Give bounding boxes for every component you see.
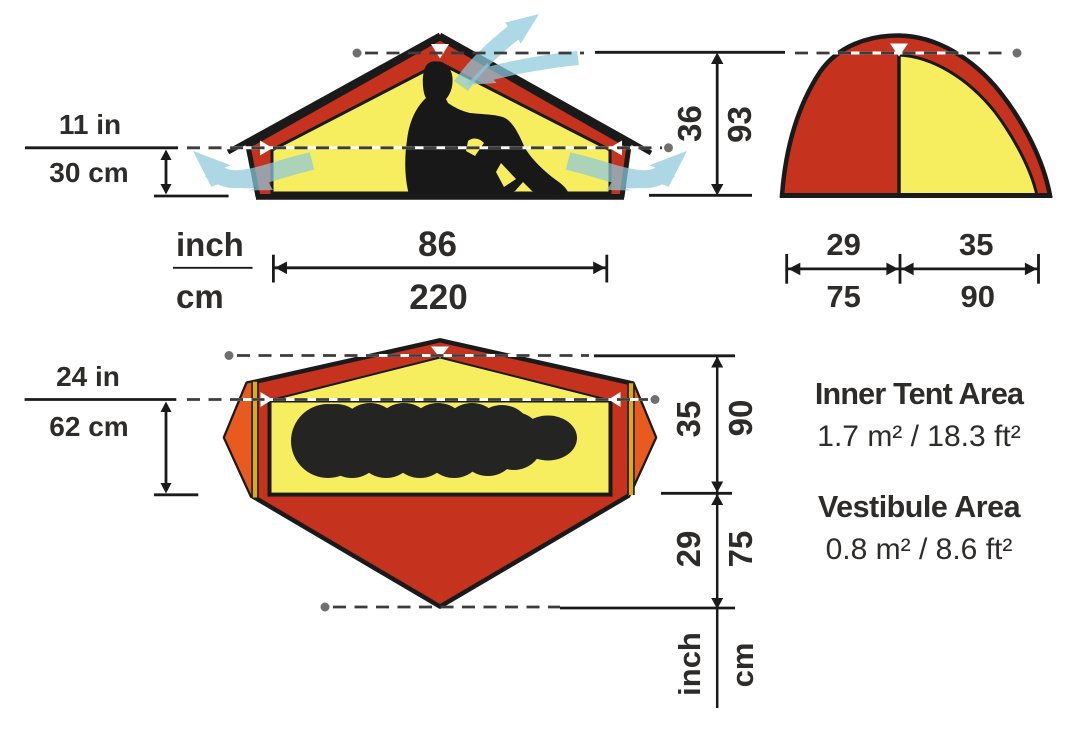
svg-text:62 cm: 62 cm: [49, 411, 128, 442]
svg-text:cm: cm: [176, 278, 224, 315]
svg-text:36: 36: [671, 105, 708, 142]
svg-text:29: 29: [826, 227, 860, 262]
svg-text:35: 35: [959, 227, 993, 262]
svg-text:Inner Tent Area: Inner Tent Area: [815, 377, 1025, 411]
svg-text:29: 29: [670, 531, 707, 568]
svg-text:75: 75: [722, 531, 759, 568]
svg-text:86: 86: [418, 225, 457, 264]
svg-text:220: 220: [409, 278, 467, 317]
svg-text:93: 93: [721, 106, 758, 143]
svg-text:cm: cm: [725, 643, 760, 688]
svg-text:Vestibule Area: Vestibule Area: [818, 490, 1022, 524]
svg-text:24 in: 24 in: [56, 361, 120, 392]
svg-text:inch: inch: [176, 226, 244, 263]
svg-text:inch: inch: [672, 632, 707, 696]
svg-text:90: 90: [961, 279, 995, 314]
svg-text:30 cm: 30 cm: [49, 157, 128, 188]
svg-text:0.8 m² / 8.6 ft²: 0.8 m² / 8.6 ft²: [826, 533, 1013, 566]
svg-text:90: 90: [722, 400, 759, 437]
svg-text:75: 75: [826, 279, 860, 314]
svg-text:1.7 m² / 18.3 ft²: 1.7 m² / 18.3 ft²: [817, 420, 1020, 453]
svg-text:11 in: 11 in: [59, 109, 121, 140]
svg-text:35: 35: [670, 401, 707, 438]
